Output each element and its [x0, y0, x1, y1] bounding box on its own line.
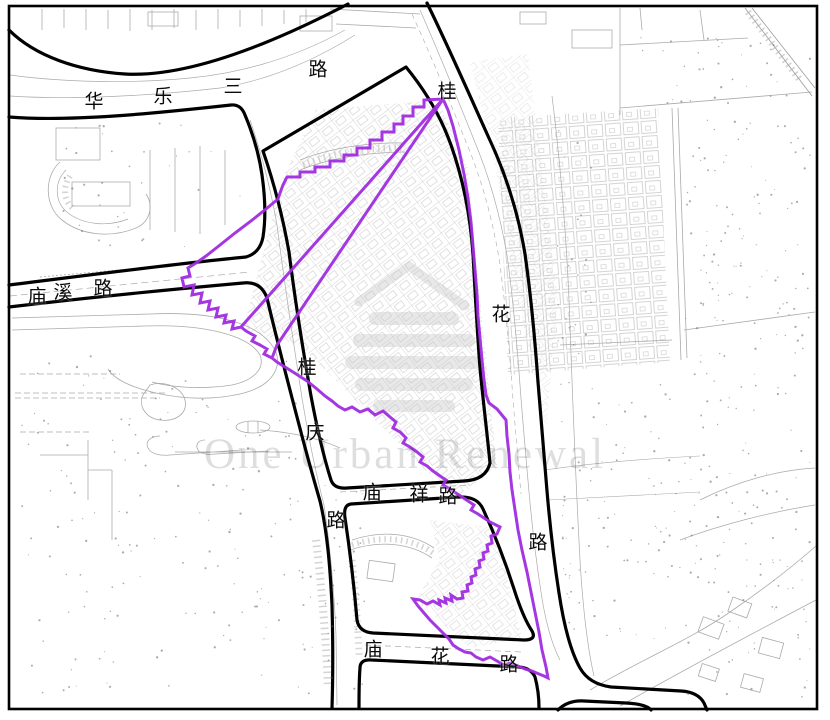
road-label-char-3: 桂	[297, 353, 316, 380]
road-hualesan-lower-and-guiqing-west	[9, 105, 265, 285]
road-label-char-2: 溪	[53, 278, 72, 305]
road-label-char-3: 路	[326, 506, 345, 533]
road-label-char-2: 庙	[27, 282, 46, 309]
road-label-char-0: 三	[223, 72, 242, 99]
road-label-char-1: 花	[491, 300, 510, 327]
road-label-char-0: 华	[84, 87, 103, 114]
road-label-char-1: 路	[528, 528, 547, 555]
road-label-char-4: 路	[438, 482, 457, 509]
road-label-char-3: 庆	[305, 418, 324, 445]
road-label-char-2: 路	[93, 274, 112, 301]
road-label-char-5: 花	[430, 642, 449, 669]
road-label-char-4: 庙	[362, 478, 381, 505]
road-hualesan-upper-edge	[9, 4, 348, 74]
road-label-char-1: 桂	[437, 77, 456, 104]
road-label-char-0: 路	[308, 55, 327, 82]
map-canvas	[0, 0, 830, 720]
road-label-char-5: 路	[499, 650, 518, 677]
road-label-char-5: 庙	[363, 635, 382, 662]
road-label-char-0: 乐	[153, 82, 172, 109]
map-stage: One Urban Renewal 华乐三路桂花路庙溪路桂庆路庙祥路庙花路	[0, 0, 830, 720]
road-miaoxi-south-and-guiqing-west	[9, 283, 333, 708]
road-label-char-4: 祥	[409, 480, 428, 507]
